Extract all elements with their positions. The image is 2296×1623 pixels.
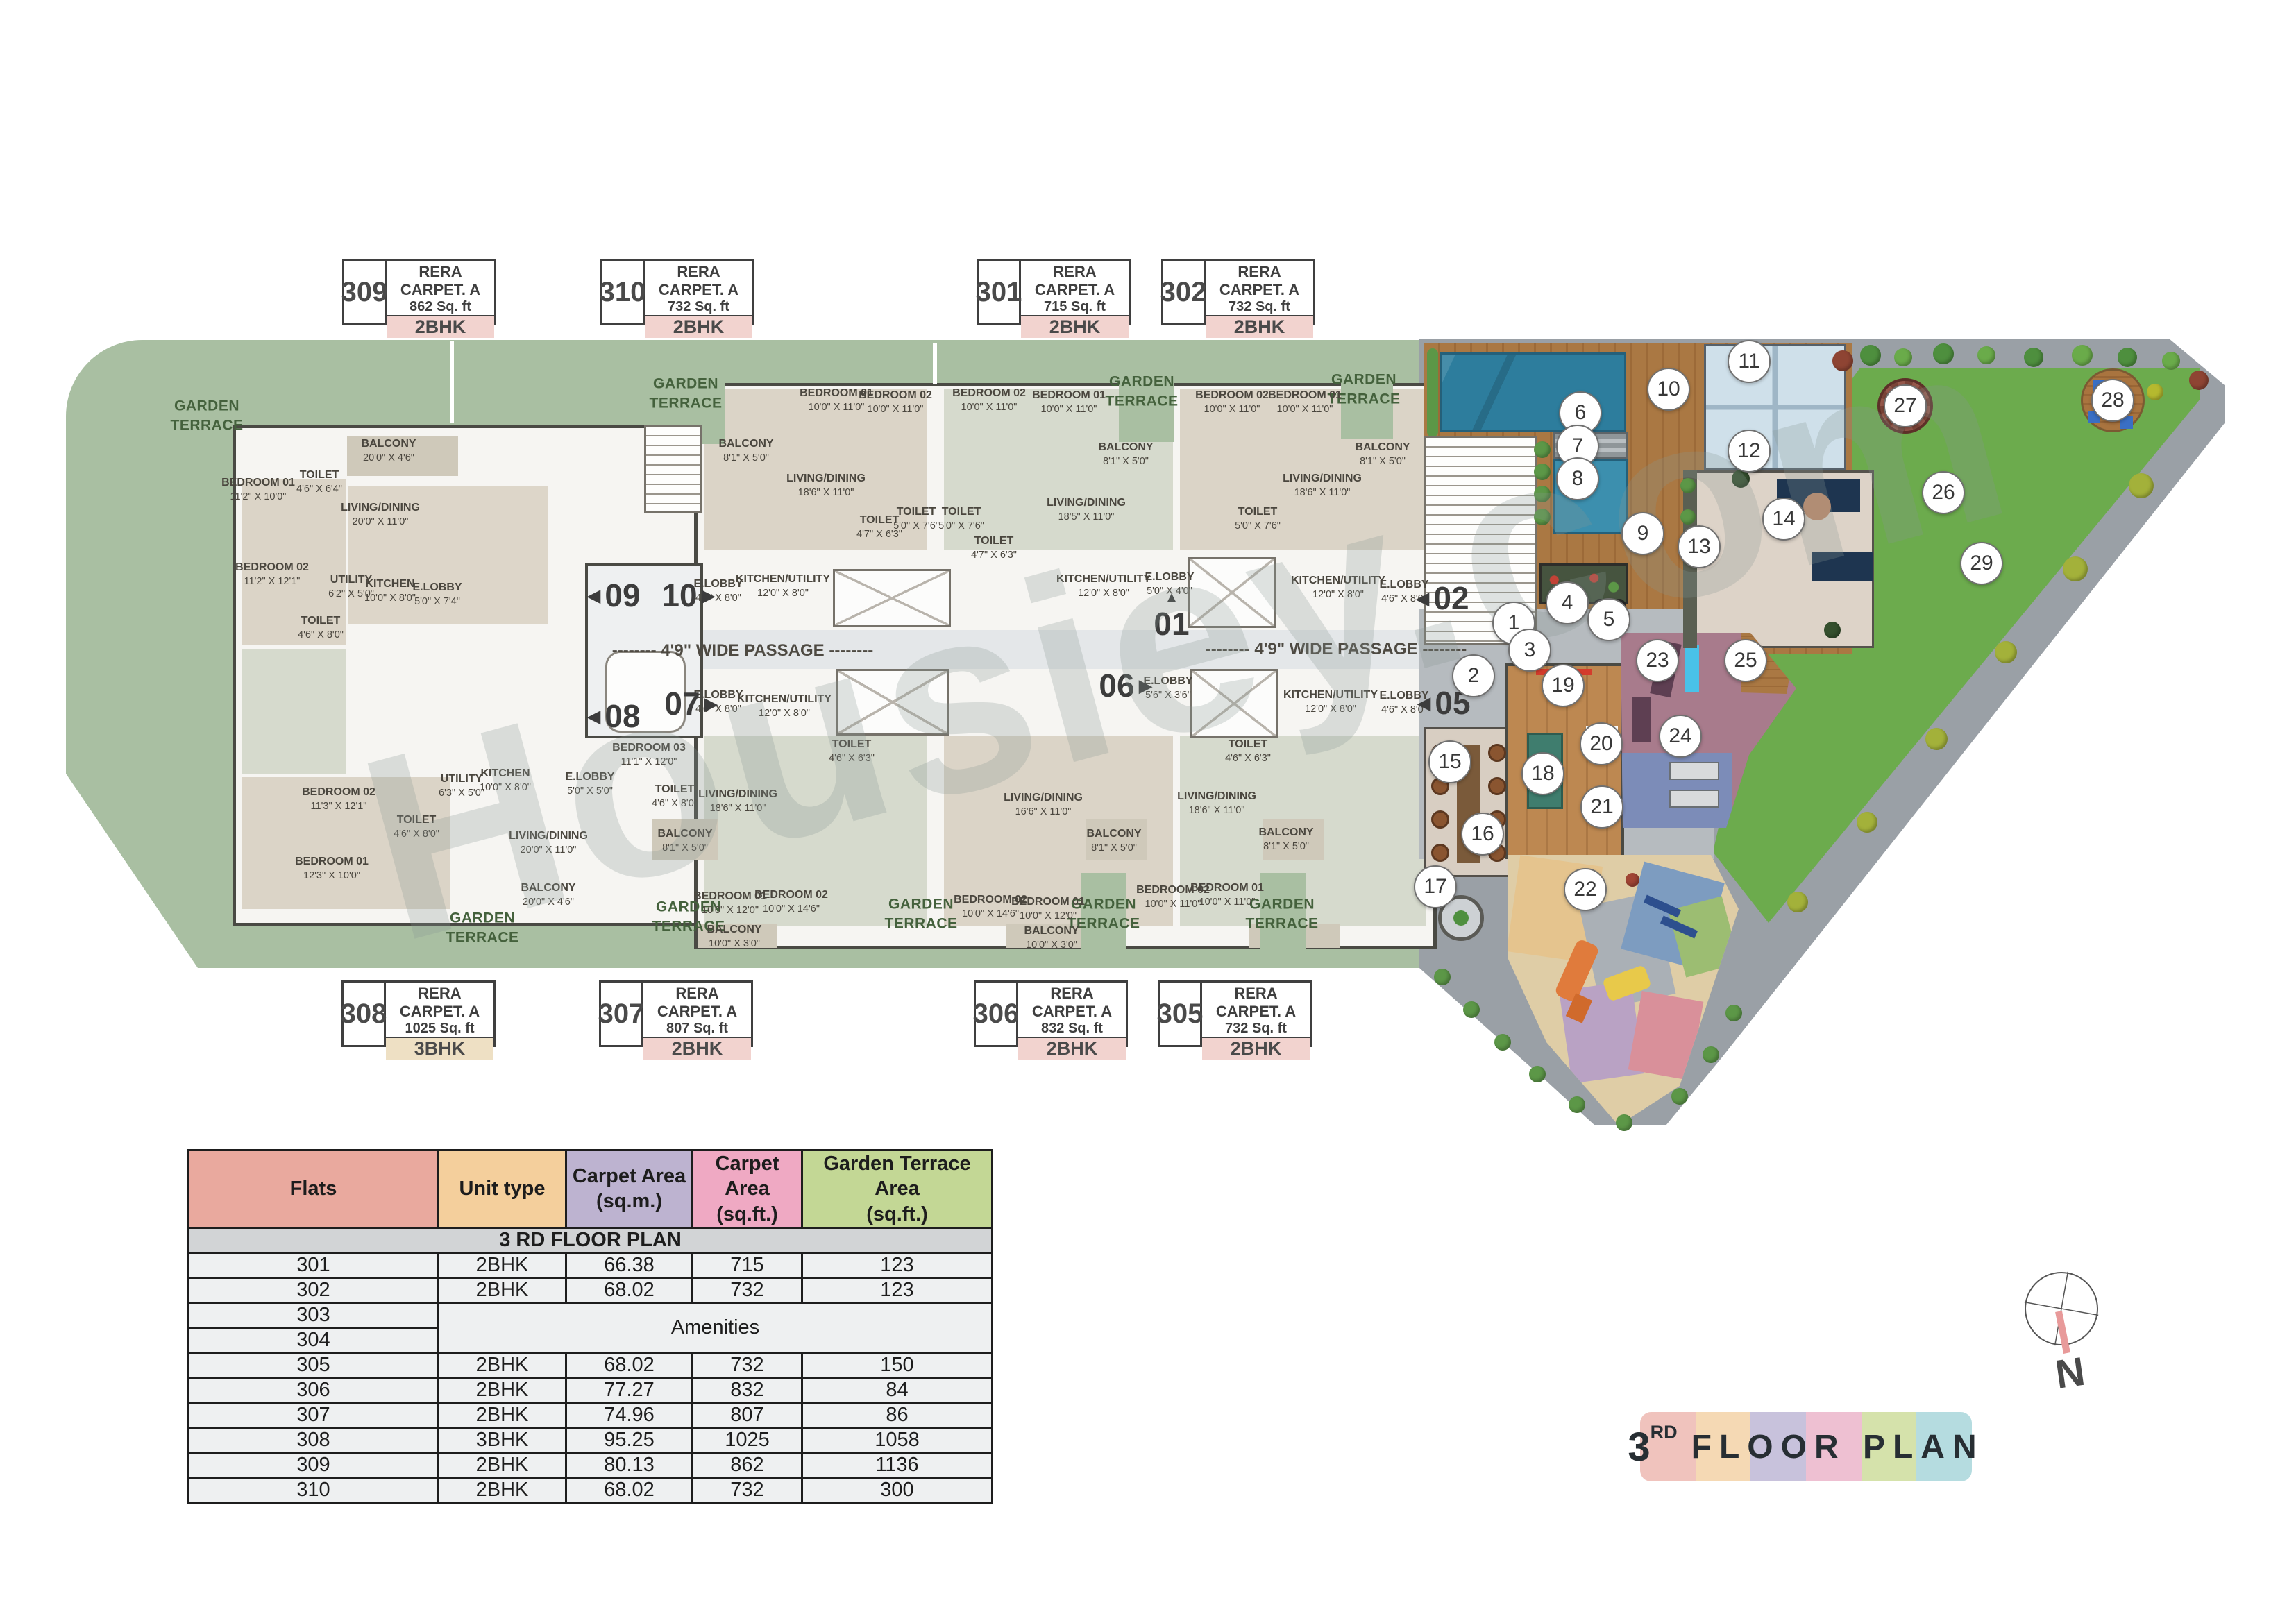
tree: [1534, 486, 1551, 502]
carpet-area-value: 732 Sq. ft: [1202, 1021, 1310, 1037]
room-label: BEDROOM 0211'2" X 12'1": [235, 561, 309, 588]
room-label: LIVING/DINING18'6" X 11'0": [698, 788, 777, 815]
unit-entry-marker-06: 06▶: [1099, 667, 1152, 704]
tree: [2147, 384, 2163, 400]
room-label: BALCONY8'1" X 5'0": [1258, 826, 1313, 853]
tree: [1529, 1066, 1546, 1082]
room-label: BALCONY8'1" X 5'0": [1355, 441, 1410, 468]
flat-cell-303: 303: [189, 1302, 439, 1327]
room-label: BEDROOM 0210'0" X 14'6": [754, 888, 828, 916]
room-label: KITCHEN/UTILITY12'0" X 8'0": [1283, 688, 1378, 716]
flat-cell-302: 302: [189, 1277, 439, 1302]
rera-box-310: 310RERA CARPET. A732 Sq. ft2BHK: [600, 259, 754, 325]
unit-type-badge: 2BHK: [1018, 1037, 1126, 1060]
room-label: TOILET4'6" X 8'0": [298, 614, 344, 642]
amenity-marker-26: 26: [1922, 471, 1965, 514]
room-label: BEDROOM 0110'0" X 11'0": [1032, 389, 1106, 416]
amenity-marker-23: 23: [1636, 639, 1679, 682]
room-label: LIVING/DINING16'6" X 11'0": [1004, 791, 1083, 819]
tree: [1671, 1088, 1688, 1105]
flat-cell-308: 308: [189, 1427, 439, 1452]
amenity-marker-17: 17: [1414, 865, 1457, 908]
room-label: KITCHEN/UTILITY12'0" X 8'0": [737, 692, 832, 720]
tree: [1463, 1001, 1480, 1018]
tree: [2162, 352, 2180, 370]
toilet-block: [1704, 344, 1846, 470]
amenity-marker-29: 29: [1960, 542, 2003, 585]
table-cell: 2BHK: [439, 1252, 566, 1277]
rera-box-308: 308RERA CARPET. A1025 Sq. ft3BHK: [341, 980, 496, 1047]
flat-number: 302: [1163, 261, 1206, 323]
table-cell: 1025: [693, 1427, 802, 1452]
amenity-marker-24: 24: [1659, 715, 1702, 758]
table-header-2: Carpet Area(sq.m.): [566, 1150, 693, 1228]
rera-box-302: 302RERA CARPET. A732 Sq. ft2BHK: [1161, 259, 1315, 325]
table-cell: 732: [693, 1277, 802, 1302]
table-header-1: Unit type: [439, 1150, 566, 1228]
room-label: KITCHEN/UTILITY12'0" X 8'0": [1056, 572, 1151, 600]
amenity-marker-20: 20: [1580, 722, 1623, 765]
rera-carpet-title: RERA CARPET. A: [645, 261, 752, 299]
rera-box-306: 306RERA CARPET. A832 Sq. ft2BHK: [974, 980, 1128, 1047]
room-label: BALCONY8'1" X 5'0": [1098, 441, 1153, 468]
room-label: BALCONY10'0" X 3'0": [1024, 924, 1079, 952]
tree: [1569, 1096, 1585, 1113]
tree: [1680, 478, 1696, 493]
table-cell: 807: [693, 1402, 802, 1427]
amenity-marker-5: 5: [1587, 598, 1630, 641]
room-label: BEDROOM 0210'0" X 11'0": [1195, 389, 1269, 416]
tree: [1534, 464, 1551, 480]
room-label: LIVING/DINING20'0" X 11'0": [509, 829, 588, 857]
tree: [1616, 1114, 1632, 1131]
carpet-area-value: 807 Sq. ft: [643, 1021, 751, 1037]
room-label: BALCONY10'0" X 3'0": [707, 923, 761, 951]
room-label: BALCONY8'1" X 5'0": [718, 437, 773, 465]
amenity-marker-18: 18: [1521, 752, 1564, 795]
flat-cell-304: 304: [189, 1327, 439, 1352]
table-cell: 123: [802, 1252, 993, 1277]
table-cell: 715: [693, 1252, 802, 1277]
table-cell: 1058: [802, 1427, 993, 1452]
tree: [2024, 348, 2043, 367]
rera-box-307: 307RERA CARPET. A807 Sq. ft2BHK: [599, 980, 753, 1047]
table-cell: 2BHK: [439, 1352, 566, 1377]
unit-entry-marker-10: 10▶: [661, 577, 715, 614]
tree: [2189, 371, 2209, 390]
table-cell: 832: [693, 1377, 802, 1402]
unit-entry-marker-01: ▲01: [1154, 590, 1189, 643]
room-label: LIVING/DINING18'6" X 11'0": [786, 472, 866, 500]
amenity-marker-12: 12: [1728, 430, 1771, 473]
tree: [1925, 728, 1948, 750]
lounge-seat: [1488, 744, 1506, 762]
amenity-marker-25: 25: [1724, 639, 1767, 682]
lounge-seat: [1431, 810, 1449, 829]
carpet-area-value: 732 Sq. ft: [1206, 299, 1313, 315]
flat-cell-309: 309: [189, 1452, 439, 1477]
rera-box-309: 309RERA CARPET. A862 Sq. ft2BHK: [342, 259, 496, 325]
room-label: KITCHEN/UTILITY12'0" X 8'0": [1291, 574, 1385, 602]
room-label: TOILET4'6" X 6'3": [1225, 738, 1271, 765]
flat-cell-305: 305: [189, 1352, 439, 1377]
lift-shaft: [1190, 669, 1278, 738]
unit-type-badge: 2BHK: [1202, 1037, 1310, 1060]
room-label: BALCONY8'1" X 5'0": [1086, 827, 1141, 855]
room-label: BEDROOM 0210'0" X 11'0": [859, 389, 932, 416]
flat-number: 308: [344, 983, 386, 1045]
rera-carpet-title: RERA CARPET. A: [1206, 261, 1313, 299]
table-header-0: Flats: [189, 1150, 439, 1228]
table-header-3: Carpet Area(sq.ft.): [693, 1150, 802, 1228]
garden-terrace-label: GARDENTERRACE: [1105, 373, 1178, 412]
flat-cell-307: 307: [189, 1402, 439, 1427]
garden-terrace-label: GARDENTERRACE: [884, 895, 957, 935]
amenity-marker-22: 22: [1564, 868, 1607, 911]
staircase: [644, 425, 702, 513]
room-label: LIVING/DINING18'5" X 11'0": [1047, 496, 1126, 524]
table-cell: 66.38: [566, 1252, 693, 1277]
rera-carpet-title: RERA CARPET. A: [1021, 261, 1129, 299]
room-label: TOILET5'0" X 7'6": [938, 505, 984, 533]
tree: [1626, 873, 1639, 887]
unit-type-badge: 2BHK: [1206, 315, 1313, 338]
amenity-marker-16: 16: [1461, 813, 1504, 856]
carpet-area-value: 862 Sq. ft: [387, 299, 494, 315]
table-cell: 2BHK: [439, 1402, 566, 1427]
table-cell: 150: [802, 1352, 993, 1377]
room-label: BALCONY8'1" X 5'0": [657, 827, 712, 855]
table-cell: 80.13: [566, 1452, 693, 1477]
floor-plan-canvas: GARDENTERRACEGARDENTERRACEGARDENTERRACEG…: [0, 0, 2296, 1623]
amenity-marker-13: 13: [1678, 525, 1721, 568]
flat-cell-310: 310: [189, 1477, 439, 1502]
lounge-seat: [1431, 844, 1449, 862]
room-label: BEDROOM 0110'0" X 11'0": [1268, 389, 1342, 416]
amenity-marker-19: 19: [1542, 664, 1585, 707]
amenity-marker-2: 2: [1452, 654, 1495, 697]
flat-cell-301: 301: [189, 1252, 439, 1277]
carpet-area-value: 832 Sq. ft: [1018, 1021, 1126, 1037]
tree: [1977, 346, 1995, 364]
room-label: BEDROOM 0110'0" X 12'0": [1011, 895, 1085, 923]
tree: [1680, 509, 1696, 525]
room-label: BEDROOM 0111'2" X 10'0": [221, 476, 295, 504]
unit-type-badge: 2BHK: [387, 315, 494, 338]
table-cell: 86: [802, 1402, 993, 1427]
room-label: TOILET5'0" X 7'6": [893, 505, 939, 533]
tree: [1894, 348, 1912, 366]
room-label: BALCONY20'0" X 4'6": [521, 881, 575, 909]
table-cell: 68.02: [566, 1477, 693, 1502]
room-label: E.LOBBY5'0" X 5'0": [565, 770, 614, 798]
table-cell: 2BHK: [439, 1477, 566, 1502]
room-label: KITCHEN/UTILITY12'0" X 8'0": [736, 572, 830, 600]
room-label: BEDROOM 0210'0" X 11'0": [952, 386, 1026, 414]
room-label: TOILET4'6" X 8'0": [652, 783, 698, 810]
gym-equipment: [1632, 697, 1651, 742]
amenity-marker-11: 11: [1728, 340, 1771, 383]
rera-box-305: 305RERA CARPET. A732 Sq. ft2BHK: [1158, 980, 1312, 1047]
table-cell: 2BHK: [439, 1277, 566, 1302]
table-cell: 68.02: [566, 1352, 693, 1377]
unit-entry-marker-02: ◀02: [1415, 579, 1469, 617]
tree: [1494, 1034, 1511, 1051]
tree: [2129, 473, 2154, 498]
table-cell: 123: [802, 1277, 993, 1302]
tree: [1832, 350, 1853, 371]
flat-number: 301: [979, 261, 1021, 323]
carpet-area-value: 1025 Sq. ft: [386, 1021, 493, 1037]
terrace-divider: [933, 343, 937, 384]
treadmill: [1669, 762, 1719, 780]
amenity-marker-8: 8: [1556, 457, 1599, 500]
compass-needle: [2059, 1311, 2067, 1353]
table-cell: 732: [693, 1477, 802, 1502]
room-block: [242, 649, 346, 774]
flats-table: FlatsUnit typeCarpet Area(sq.m.)Carpet A…: [187, 1149, 993, 1504]
table-cell: 2BHK: [439, 1377, 566, 1402]
unit-type-badge: 2BHK: [643, 1037, 751, 1060]
tree: [2072, 345, 2093, 366]
flat-number: 305: [1160, 983, 1202, 1045]
hedge-strip: [1427, 348, 1438, 437]
room-label: BEDROOM 0311'1" X 12'0": [612, 741, 686, 769]
room-label: BEDROOM 0110'0" X 11'0": [1190, 881, 1264, 909]
tree: [1995, 641, 2017, 663]
table-cell: 95.25: [566, 1427, 693, 1452]
flat-number: 306: [976, 983, 1018, 1045]
amenity-marker-28: 28: [2091, 379, 2134, 422]
table-cell: 862: [693, 1452, 802, 1477]
room-label: TOILET4'6" X 6'4": [296, 468, 342, 496]
flat-number: 310: [602, 261, 645, 323]
rera-carpet-title: RERA CARPET. A: [1018, 983, 1126, 1021]
lift-shaft: [833, 569, 951, 627]
unit-entry-marker-07: 07▶: [664, 685, 718, 722]
tree: [1787, 892, 1808, 912]
tree: [1703, 1046, 1719, 1063]
unit-type-badge: 3BHK: [386, 1037, 493, 1060]
compass-north-label: N: [2052, 1349, 2088, 1397]
gym-mat-cyan: [1685, 645, 1699, 692]
room-label: TOILET4'6" X 6'3": [829, 738, 875, 765]
table-cell: 84: [802, 1377, 993, 1402]
tree: [2063, 556, 2088, 581]
garden-terrace-label: GARDENTERRACE: [446, 909, 518, 949]
treadmill: [1669, 790, 1719, 808]
lift-shaft: [1188, 557, 1276, 628]
amenity-marker-10: 10: [1647, 368, 1690, 411]
counter: [1812, 552, 1873, 581]
passage-label: -------- 4'9" WIDE PASSAGE --------: [1206, 640, 1467, 659]
rera-carpet-title: RERA CARPET. A: [387, 261, 494, 299]
carpet-area-value: 732 Sq. ft: [645, 299, 752, 315]
table-cell: 2BHK: [439, 1452, 566, 1477]
room-label: UTILITY6'3" X 5'0": [439, 772, 484, 800]
tree: [2118, 348, 2137, 367]
table-cell: 68.02: [566, 1277, 693, 1302]
flat-number: 307: [601, 983, 643, 1045]
banner-floor-ordinal: RD: [1651, 1422, 1678, 1443]
garden-terrace-label: GARDENTERRACE: [649, 375, 722, 414]
amenity-marker-15: 15: [1428, 740, 1471, 783]
room-label: LIVING/DINING18'6" X 11'0": [1177, 790, 1256, 817]
room-label: TOILET5'0" X 7'6": [1235, 505, 1281, 533]
amenity-marker-27: 27: [1884, 384, 1927, 427]
passage-label: -------- 4'9" WIDE PASSAGE --------: [612, 641, 874, 661]
north-compass: N: [2013, 1261, 2117, 1404]
room-label: KITCHEN10'0" X 8'0": [480, 767, 531, 794]
fountain-center: [1453, 910, 1469, 926]
unit-entry-marker-08: ◀08: [586, 697, 640, 735]
round-table: [1803, 493, 1831, 520]
kids-play-area: [1492, 850, 1749, 1135]
table-cell: 3BHK: [439, 1427, 566, 1452]
unit-type-badge: 2BHK: [645, 315, 752, 338]
tree: [1434, 969, 1451, 985]
amenity-marker-9: 9: [1621, 512, 1664, 555]
table-cell: 1136: [802, 1452, 993, 1477]
table-cell: 300: [802, 1477, 993, 1502]
tree: [1725, 1005, 1742, 1021]
amenity-marker-14: 14: [1762, 498, 1805, 541]
unit-entry-marker-09: ◀09: [586, 577, 640, 614]
tree: [1534, 509, 1551, 525]
unit-type-badge: 2BHK: [1021, 315, 1129, 338]
rera-carpet-title: RERA CARPET. A: [386, 983, 493, 1021]
table-cell: 732: [693, 1352, 802, 1377]
room-label: LIVING/DINING18'6" X 11'0": [1283, 472, 1362, 500]
table-header-4: Garden Terrace Area(sq.ft.): [802, 1150, 993, 1228]
room-label: BEDROOM 0211'3" X 12'1": [302, 785, 375, 813]
table-cell: 74.96: [566, 1402, 693, 1427]
rera-carpet-title: RERA CARPET. A: [1202, 983, 1310, 1021]
amenity-marker-4: 4: [1546, 581, 1589, 624]
amenity-marker-21: 21: [1580, 785, 1623, 829]
room-label: LIVING/DINING20'0" X 11'0": [341, 501, 420, 529]
room-label: KITCHEN10'0" X 8'0": [364, 577, 416, 605]
tree: [1534, 441, 1551, 458]
room-label: TOILET4'6" X 8'0": [394, 813, 439, 841]
tree: [1860, 345, 1881, 366]
table-cell: 77.27: [566, 1377, 693, 1402]
amenities-cell: Amenities: [439, 1302, 993, 1352]
banner-title-text: FLOOR PLAN: [1691, 1428, 1984, 1466]
table-section-title: 3 RD FLOOR PLAN: [189, 1227, 993, 1252]
terrace-divider: [450, 341, 454, 423]
banner-floor-number: 3: [1628, 1424, 1650, 1470]
room-label: BEDROOM 0112'3" X 10'0": [295, 855, 369, 883]
flat-number: 309: [344, 261, 387, 323]
room-label: BALCONY20'0" X 4'6": [361, 437, 416, 465]
room-label: TOILET4'7" X 6'3": [971, 534, 1017, 562]
flat-cell-306: 306: [189, 1377, 439, 1402]
rera-carpet-title: RERA CARPET. A: [643, 983, 751, 1021]
carpet-area-value: 715 Sq. ft: [1021, 299, 1129, 315]
floor-plan-banner-title: 3RDFLOOR PLAN: [1640, 1412, 1972, 1481]
lift-shaft: [836, 669, 949, 736]
garden-terrace-label: GARDENTERRACE: [170, 397, 243, 436]
tree: [1824, 622, 1841, 638]
amenity-marker-3: 3: [1508, 629, 1551, 672]
tree: [1857, 812, 1877, 833]
rera-box-301: 301RERA CARPET. A715 Sq. ft2BHK: [977, 259, 1131, 325]
room-label: E.LOBBY5'0" X 7'4": [412, 581, 462, 609]
tree: [1933, 343, 1954, 364]
lounge-seat: [1488, 777, 1506, 795]
